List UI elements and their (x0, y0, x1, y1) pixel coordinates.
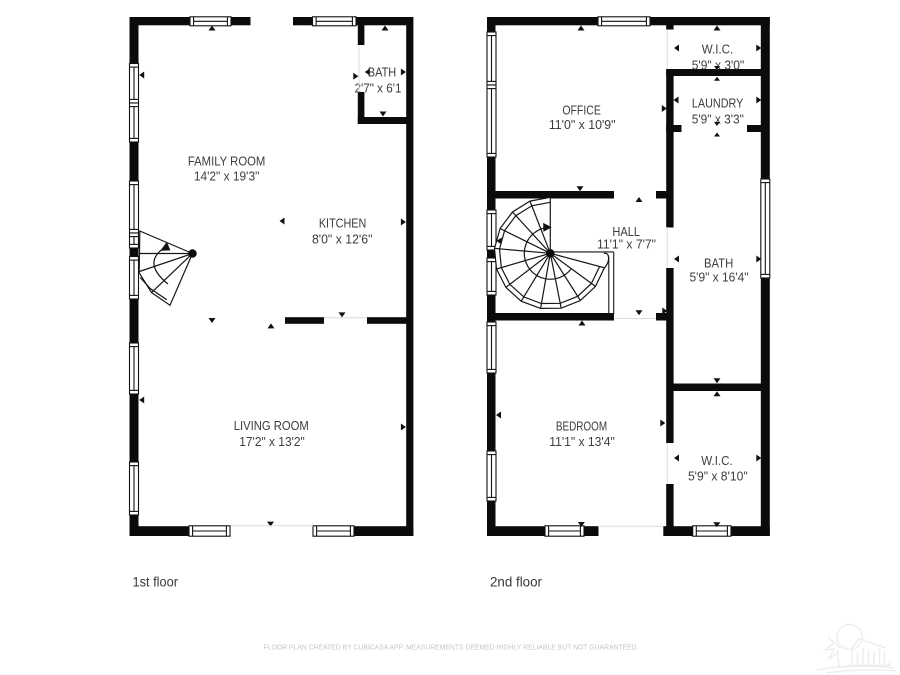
svg-text:FLOOR PLAN CREATED BY CUBICASA: FLOOR PLAN CREATED BY CUBICASA APP. MEAS… (264, 643, 639, 652)
svg-text:FAMILY ROOM: FAMILY ROOM (188, 154, 266, 169)
svg-text:14'2" x 19'3": 14'2" x 19'3" (194, 169, 260, 184)
svg-text:KITCHEN: KITCHEN (319, 216, 367, 231)
svg-text:LAUNDRY: LAUNDRY (692, 96, 744, 111)
svg-text:2'7" x 6'1: 2'7" x 6'1 (355, 81, 402, 96)
svg-text:BATH: BATH (704, 256, 733, 271)
svg-text:W.I.C.: W.I.C. (701, 453, 733, 468)
svg-text:5'9" x 16'4": 5'9" x 16'4" (690, 270, 749, 285)
svg-text:BEDROOM: BEDROOM (556, 419, 607, 434)
svg-text:8'0" x 12'6": 8'0" x 12'6" (312, 232, 373, 247)
svg-text:BATH: BATH (368, 65, 397, 80)
svg-text:11'1" x 13'4": 11'1" x 13'4" (549, 434, 615, 449)
svg-text:17'2" x 13'2": 17'2" x 13'2" (239, 434, 305, 449)
svg-text:5'9" x 3'0": 5'9" x 3'0" (692, 58, 745, 73)
svg-text:1st floor: 1st floor (133, 575, 179, 590)
svg-text:OFFICE: OFFICE (562, 103, 601, 118)
svg-text:2nd floor: 2nd floor (490, 575, 542, 590)
svg-text:11'0" x 10'9": 11'0" x 10'9" (549, 117, 616, 132)
svg-text:W.I.C.: W.I.C. (702, 42, 734, 57)
svg-text:LIVING ROOM: LIVING ROOM (234, 418, 309, 433)
svg-text:11'1" x 7'7": 11'1" x 7'7" (597, 237, 656, 252)
svg-text:5'9" x 8'10": 5'9" x 8'10" (688, 469, 748, 484)
